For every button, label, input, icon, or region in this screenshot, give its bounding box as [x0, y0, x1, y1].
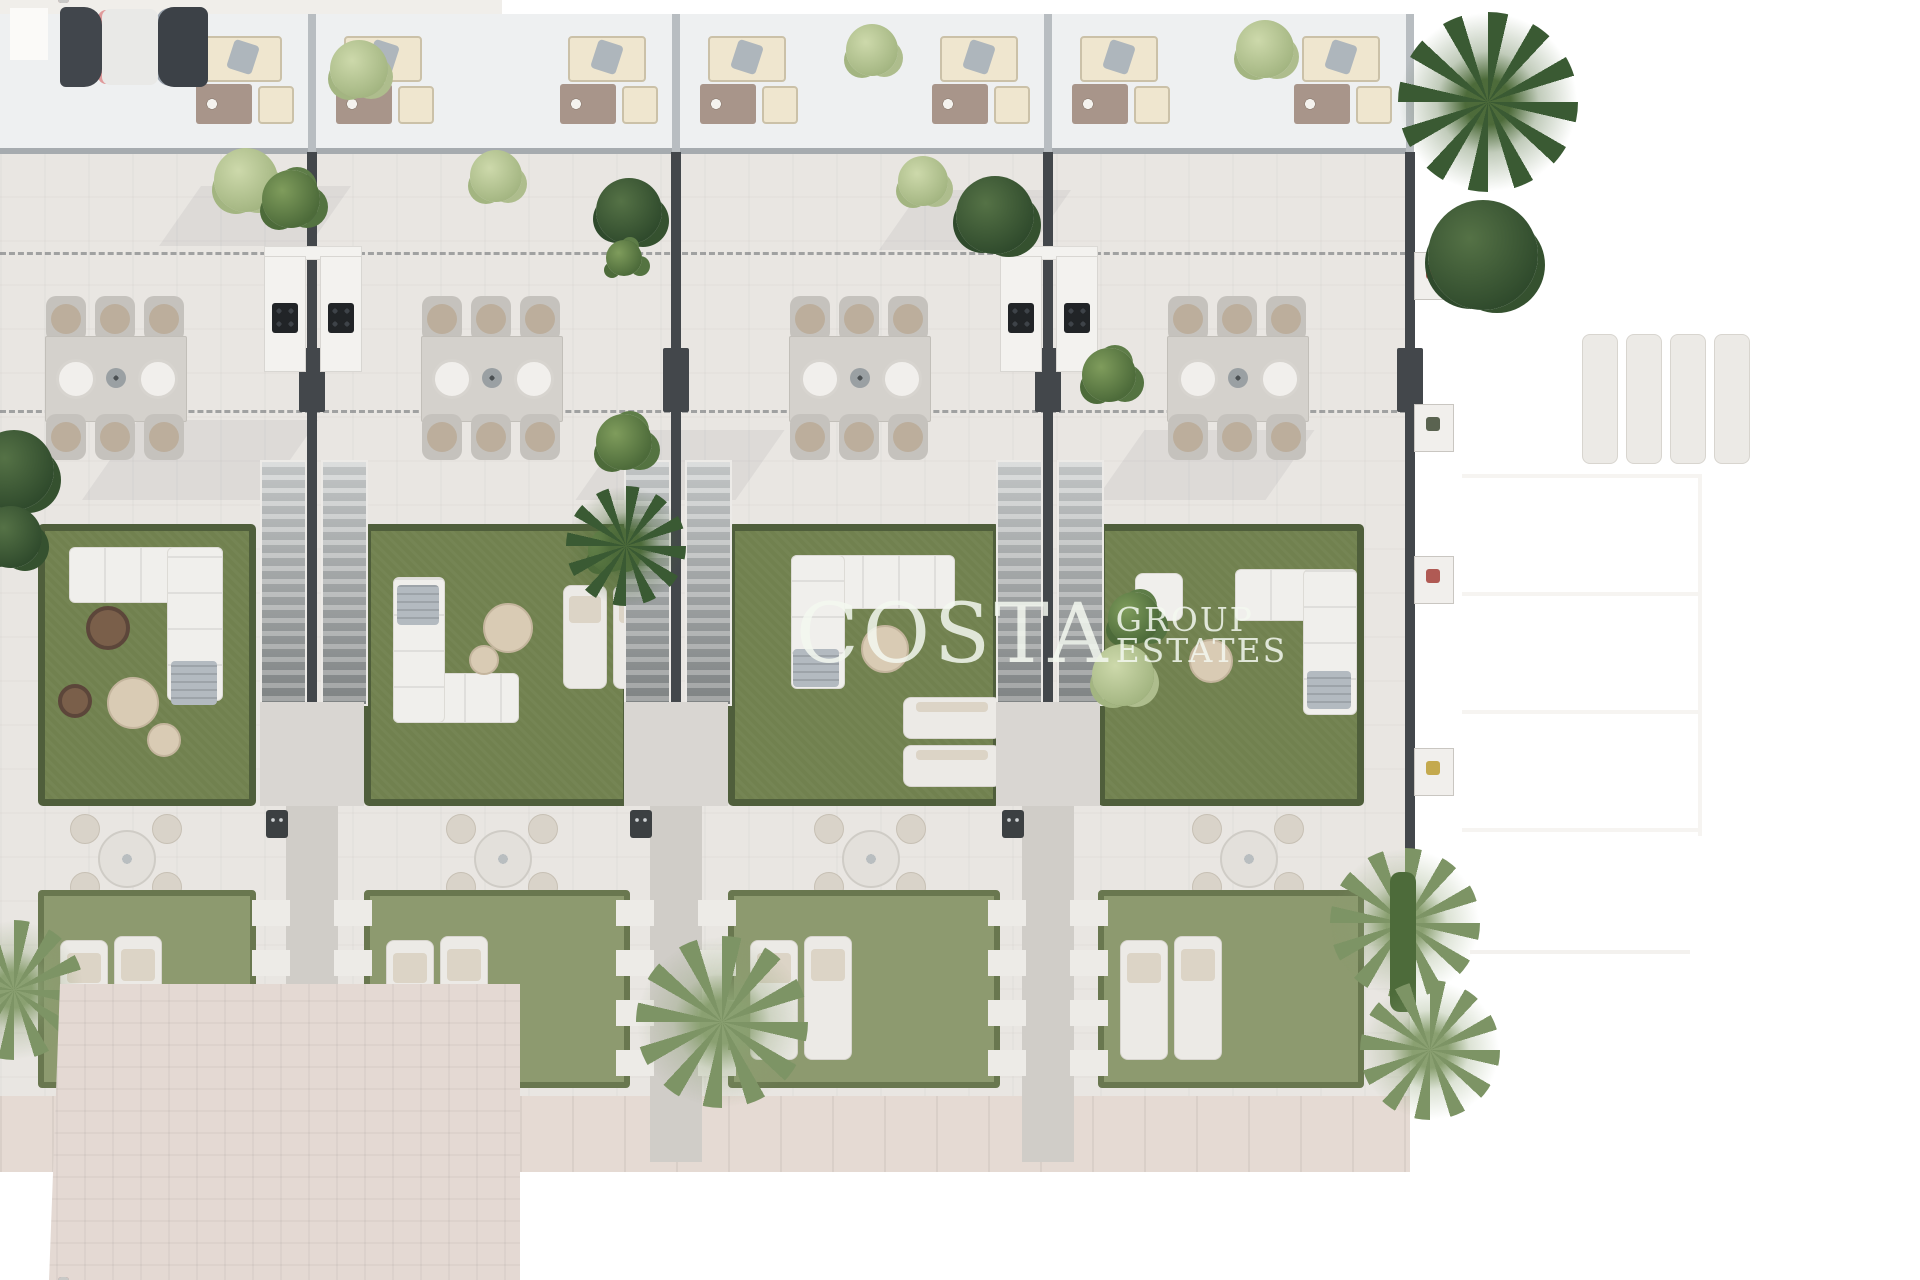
dining-chair	[1266, 414, 1306, 460]
dining-chair	[1168, 414, 1208, 460]
bush-icon	[898, 156, 948, 206]
sun-lounger	[1174, 936, 1222, 1060]
patio-chair	[70, 814, 100, 844]
coffee-table	[932, 84, 988, 124]
patio-table	[842, 830, 900, 888]
patio-chair	[1274, 814, 1304, 844]
cooktop-icon	[1064, 303, 1090, 333]
tree-icon	[1428, 200, 1538, 310]
pouf	[107, 677, 159, 729]
dining-chair	[790, 414, 830, 460]
sun-lounger	[1582, 334, 1618, 464]
dining-chairs	[784, 414, 934, 460]
bowl-icon	[482, 368, 502, 388]
bbq-grill-icon	[266, 810, 288, 838]
coffee-table	[700, 84, 756, 124]
garden-walkway	[1022, 806, 1074, 1162]
bush-icon	[606, 240, 642, 276]
bush-icon	[470, 150, 522, 202]
patio-chair	[1192, 814, 1222, 844]
palm-tree-icon	[1360, 980, 1500, 1120]
patio-chair	[152, 814, 182, 844]
palm-tree-icon	[566, 486, 686, 606]
roof-lounge-set	[1072, 36, 1164, 136]
dining-table	[45, 336, 187, 422]
utility-dot	[1426, 417, 1440, 431]
bowl-icon	[1228, 368, 1248, 388]
bush-icon	[1108, 592, 1160, 644]
bowl-icon	[106, 368, 126, 388]
patio-dining-set	[440, 814, 564, 902]
side-mirror	[58, 0, 69, 3]
bush-icon	[1092, 644, 1154, 706]
garden-lawn	[728, 524, 1000, 806]
pouf	[861, 625, 909, 673]
dining-chair	[888, 414, 928, 460]
coffee-table	[196, 84, 252, 124]
utility-dot	[1426, 569, 1440, 583]
bush-icon	[1082, 348, 1136, 402]
staircase	[996, 460, 1043, 706]
bush-icon	[846, 24, 898, 76]
utility-unit	[1414, 404, 1454, 452]
sun-lounger	[1120, 940, 1168, 1060]
parking-stall-line	[1470, 950, 1690, 954]
shed-interior	[10, 8, 48, 60]
staircase	[321, 460, 368, 706]
cooktop-icon	[1008, 303, 1034, 333]
bush-icon	[262, 170, 320, 228]
dining-table	[1167, 336, 1309, 422]
dining-chair	[1217, 414, 1257, 460]
patio-dining-set	[64, 814, 188, 902]
patio-table	[474, 830, 532, 888]
staircase	[685, 460, 732, 706]
cooktop-icon	[328, 303, 354, 333]
sofa-blanket	[793, 649, 839, 687]
car-roof	[102, 9, 158, 85]
palm-tree-icon	[1398, 12, 1578, 192]
roof-lounge-set	[700, 36, 792, 136]
windshield	[60, 7, 102, 87]
outdoor-kitchen	[320, 256, 362, 372]
roof-lounge-set	[560, 36, 652, 136]
patio-table	[1220, 830, 1278, 888]
plate-icon	[1178, 359, 1218, 399]
sun-lounger	[1714, 334, 1750, 464]
outdoor-dining-set	[784, 296, 934, 460]
roof-wall	[308, 14, 316, 154]
parking-area	[0, 984, 520, 1280]
sun-lounger	[1626, 334, 1662, 464]
dining-chair	[95, 414, 135, 460]
plate-icon	[432, 359, 472, 399]
coffee-table	[560, 84, 616, 124]
patio-chair	[896, 814, 926, 844]
bush-icon	[330, 40, 388, 98]
coffee-table	[1072, 84, 1128, 124]
patio-dining-set	[1186, 814, 1310, 902]
plate-icon	[800, 359, 840, 399]
dining-chair	[520, 414, 560, 460]
bowl-icon	[850, 368, 870, 388]
rear-window	[158, 7, 208, 87]
stepping-stones	[988, 900, 1026, 1088]
dining-chairs	[416, 414, 566, 460]
patio-dining-set	[808, 814, 932, 902]
armchair	[994, 86, 1030, 124]
dining-chair	[46, 414, 86, 460]
armchair	[762, 86, 798, 124]
pouf	[469, 645, 499, 675]
plate-icon	[882, 359, 922, 399]
stepping-stones	[1070, 900, 1108, 1088]
dining-chair	[144, 414, 184, 460]
utility-dot	[1426, 761, 1440, 775]
wall-pillar	[1397, 348, 1423, 412]
stair-landing	[996, 702, 1100, 806]
armchair	[1356, 86, 1392, 124]
plant-pot	[86, 606, 130, 650]
sun-lounger	[903, 745, 1001, 787]
sofa-blanket	[171, 661, 217, 705]
palm-tree-icon	[636, 936, 808, 1108]
plate-icon	[514, 359, 554, 399]
armchair	[622, 86, 658, 124]
plant-pot	[58, 684, 92, 718]
parking-stall-line	[1462, 592, 1700, 596]
unit-4	[1056, 0, 1402, 1280]
utility-unit	[1414, 556, 1454, 604]
dining-table	[421, 336, 563, 422]
parking-stall-line	[1462, 710, 1700, 714]
rear-lawn	[1098, 890, 1364, 1088]
wall-pillar	[663, 348, 689, 412]
cooktop-icon	[272, 303, 298, 333]
site-plan: COSTA GROUP ESTATES	[0, 0, 1920, 1280]
plate-icon	[56, 359, 96, 399]
sofa-blanket	[1307, 671, 1351, 709]
bbq-grill-icon	[1002, 810, 1024, 838]
bush-icon	[596, 414, 652, 470]
patio-chair	[446, 814, 476, 844]
outdoor-dining-set	[1162, 296, 1312, 460]
bbq-grill-icon	[630, 810, 652, 838]
parking-stall-line	[1698, 474, 1702, 836]
outdoor-dining-set	[40, 296, 190, 460]
patio-chair	[814, 814, 844, 844]
parking-stall-line	[1462, 474, 1700, 478]
sun-lounger	[804, 936, 852, 1060]
stair-landing	[260, 702, 364, 806]
plate-icon	[138, 359, 178, 399]
plate-icon	[1260, 359, 1300, 399]
bush-icon	[1236, 20, 1294, 78]
roof-wall	[672, 14, 680, 154]
dining-chairs	[40, 414, 190, 460]
dining-chair	[422, 414, 462, 460]
tree-icon	[956, 176, 1034, 254]
tree-icon	[596, 178, 662, 244]
dining-chairs	[1162, 414, 1312, 460]
outdoor-kitchen	[264, 256, 306, 372]
roof-lounge-set	[932, 36, 1024, 136]
roof-wall	[1044, 14, 1052, 154]
coffee-table	[1294, 84, 1350, 124]
sofa-blanket	[397, 585, 439, 625]
parking-stall-line	[1462, 828, 1700, 832]
pouf	[147, 723, 181, 757]
garden-lawn	[38, 524, 256, 806]
stair-landing	[624, 702, 728, 806]
dining-table	[789, 336, 931, 422]
dining-chair	[839, 414, 879, 460]
sun-lounger	[903, 697, 1001, 739]
outdoor-dining-set	[416, 296, 566, 460]
roof-lounge-set	[196, 36, 288, 136]
sun-lounger	[1670, 334, 1706, 464]
dining-chair	[471, 414, 511, 460]
armchair	[1134, 86, 1170, 124]
outdoor-kitchen	[1000, 256, 1042, 372]
staircase	[260, 460, 307, 706]
pouf	[1189, 639, 1233, 683]
armchair	[398, 86, 434, 124]
patio-table	[98, 830, 156, 888]
armchair	[258, 86, 294, 124]
roof-lounge-set	[1294, 36, 1386, 136]
patio-chair	[528, 814, 558, 844]
utility-unit	[1414, 748, 1454, 796]
